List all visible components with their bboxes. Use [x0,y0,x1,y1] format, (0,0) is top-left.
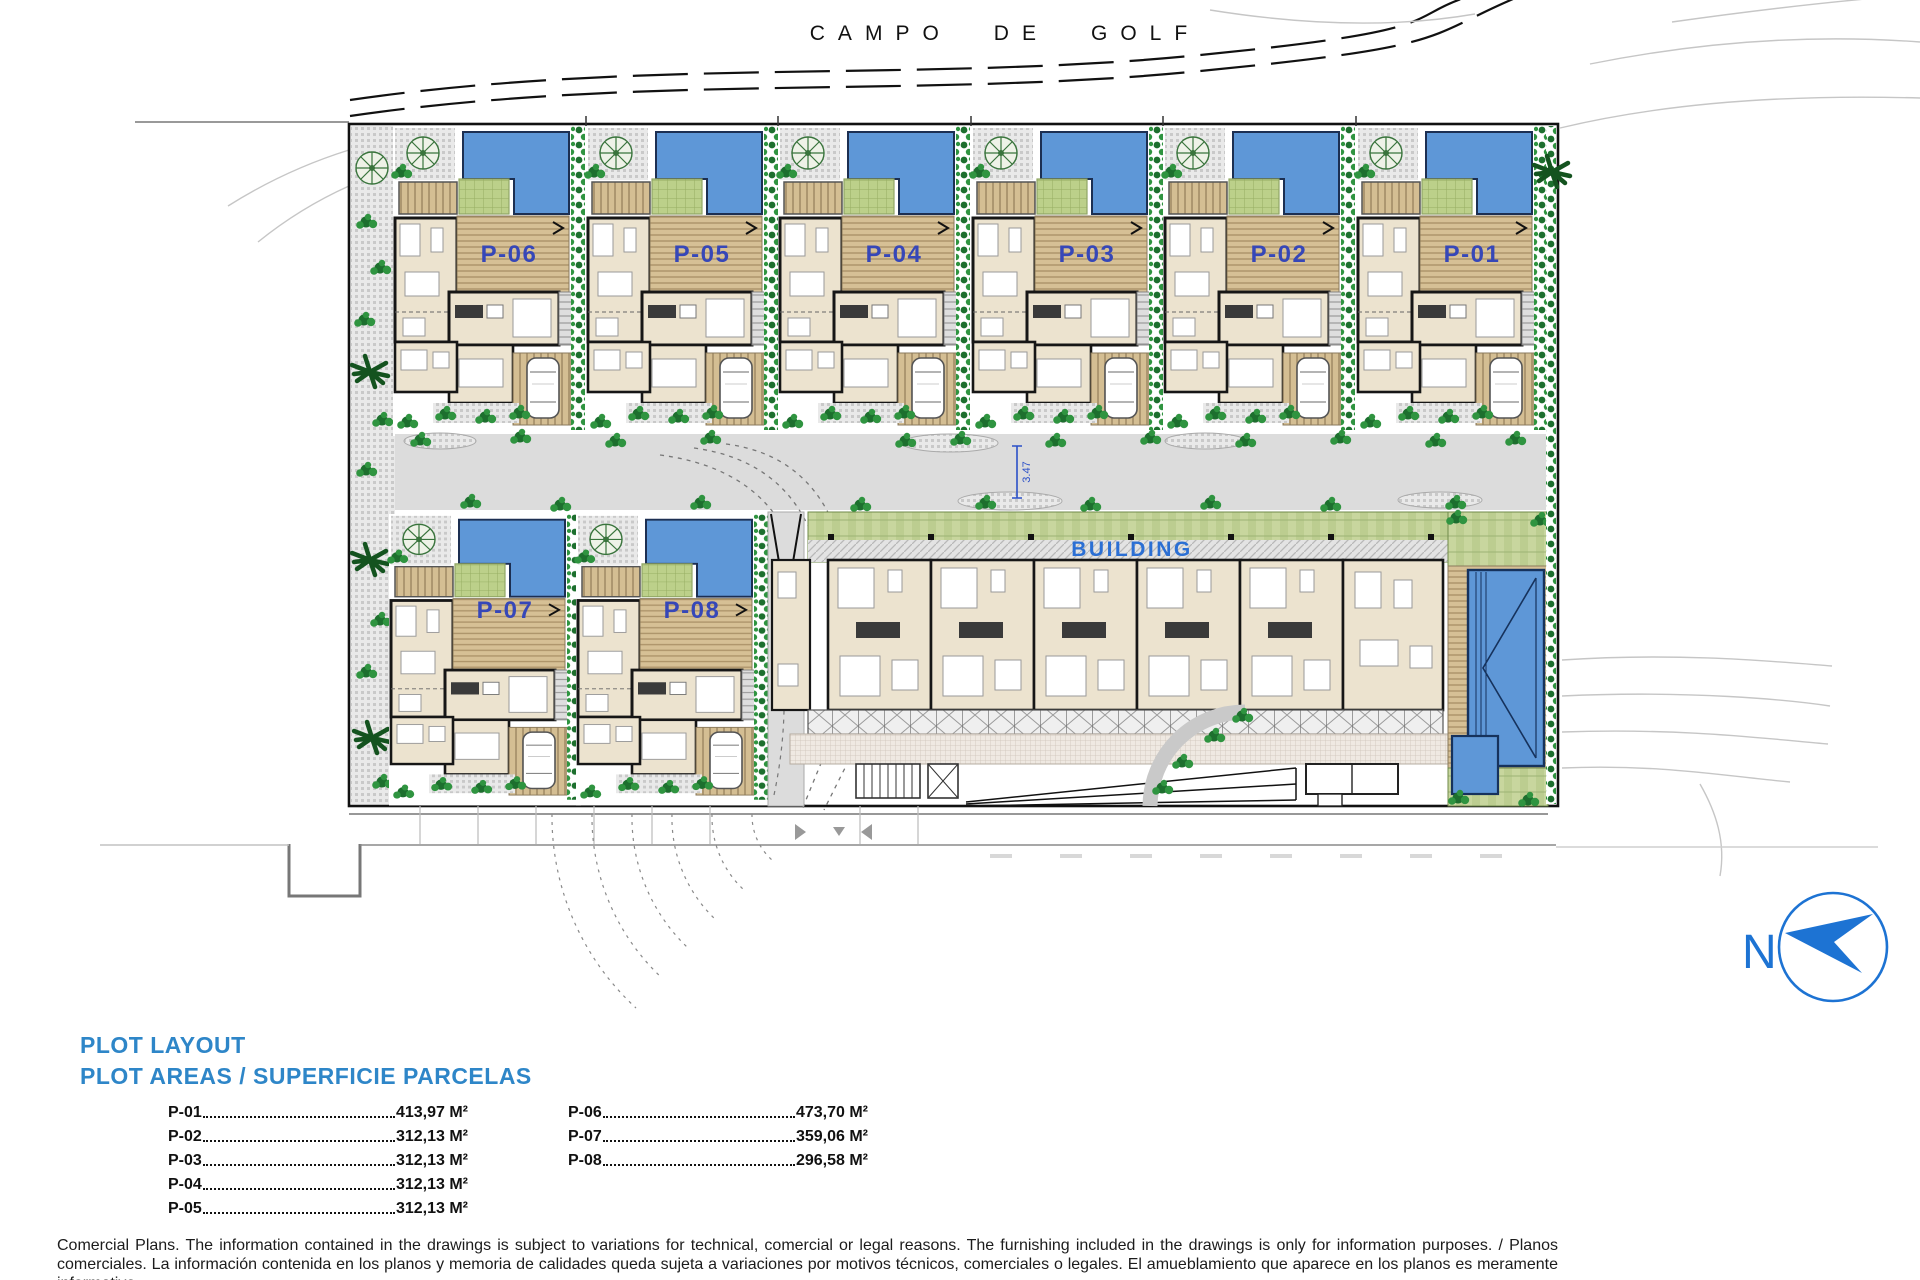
legend-plot-name: P-08 [568,1152,602,1170]
legend-row: P-04312,13 M² [168,1170,468,1194]
elevator [928,764,958,798]
site-plan-drawing: 3.47 [0,0,1920,1030]
road-dimension-value: 3.47 [1021,461,1033,482]
legend-plot-area: 312,13 M² [396,1152,468,1170]
plot-label-p06: P-06 [481,241,538,268]
legend-plot-name: P-03 [168,1152,202,1170]
villa-p01 [1354,126,1548,436]
legend-title-2: PLOT AREAS / SUPERFICIE PARCELAS [80,1061,532,1092]
leader-dots [203,1140,395,1142]
villa-p05 [584,126,778,436]
villa-p04 [776,126,970,436]
disclaimer-line-2: comerciales. La información contenida en… [57,1255,1558,1280]
legend-column-1: P-01413,97 M² P-02312,13 M² P-03312,13 M… [168,1098,468,1218]
street [100,806,1878,1008]
street-arrow-left [861,824,872,840]
villa-row-bottom [387,514,768,805]
communal-pool-area [1446,510,1551,807]
plot-label-p07: P-07 [477,597,534,624]
legend-plot-name: P-04 [168,1176,202,1194]
disclaimer: Comercial Plans. The information contain… [57,1236,1558,1280]
legend-plot-area: 312,13 M² [396,1176,468,1194]
legend-row: P-06473,70 M² [568,1098,868,1122]
villa-p07 [387,514,581,805]
plot-label-p04: P-04 [866,241,923,268]
plot-label-p03: P-03 [1059,241,1116,268]
plot-label-p05: P-05 [674,241,731,268]
swept-path-arcs [552,814,772,1008]
site-plan-page: CAMPO DE GOLF [0,0,1920,1280]
legend-plot-name: P-01 [168,1104,202,1122]
left-garden-strip [351,126,395,804]
villa-p08 [574,514,768,805]
legend-row: P-05312,13 M² [168,1194,468,1218]
villa-p02 [1161,126,1355,436]
leader-dots [203,1164,395,1166]
legend-plot-area: 473,70 M² [796,1104,868,1122]
stair [856,764,920,798]
legend-row: P-01413,97 M² [168,1098,468,1122]
legend: PLOT LAYOUT PLOT AREAS / SUPERFICIE PARC… [80,1030,532,1092]
legend-plot-area: 413,97 M² [396,1104,468,1122]
plot-label-p08: P-08 [664,597,721,624]
leader-dots [603,1116,795,1118]
legend-row: P-03312,13 M² [168,1146,468,1170]
north-label: N [1742,926,1777,979]
legend-plot-area: 296,58 M² [796,1152,868,1170]
legend-plot-name: P-07 [568,1128,602,1146]
plot-label-p02: P-02 [1251,241,1308,268]
leader-dots [603,1140,795,1142]
plot-label-p01: P-01 [1444,241,1501,268]
north-arrow: N [1720,880,1900,1020]
street-arrow-right [795,824,806,840]
legend-plot-name: P-05 [168,1200,202,1218]
legend-plot-name: P-06 [568,1104,602,1122]
leader-dots [203,1116,395,1118]
legend-row: P-07359,06 M² [568,1122,868,1146]
street-arrow-down [833,827,845,836]
legend-title-1: PLOT LAYOUT [80,1030,532,1061]
villa-row-top [391,126,1548,436]
legend-plot-area: 312,13 M² [396,1200,468,1218]
villa-p03 [969,126,1163,436]
legend-row: P-08296,58 M² [568,1146,868,1170]
leader-dots [203,1212,395,1214]
legend-plot-area: 312,13 M² [396,1128,468,1146]
leader-dots [203,1188,395,1190]
villa-p06 [391,126,585,436]
legend-plot-area: 359,06 M² [796,1128,868,1146]
legend-column-2: P-06473,70 M² P-07359,06 M² P-08296,58 M… [568,1098,868,1170]
disclaimer-line-1: Comercial Plans. The information contain… [57,1236,1558,1255]
legend-plot-name: P-02 [168,1128,202,1146]
leader-dots [603,1164,795,1166]
building-label: BUILDING [1071,538,1193,561]
street-notch [289,844,360,896]
golf-course-path [350,0,1520,116]
legend-row: P-02312,13 M² [168,1122,468,1146]
